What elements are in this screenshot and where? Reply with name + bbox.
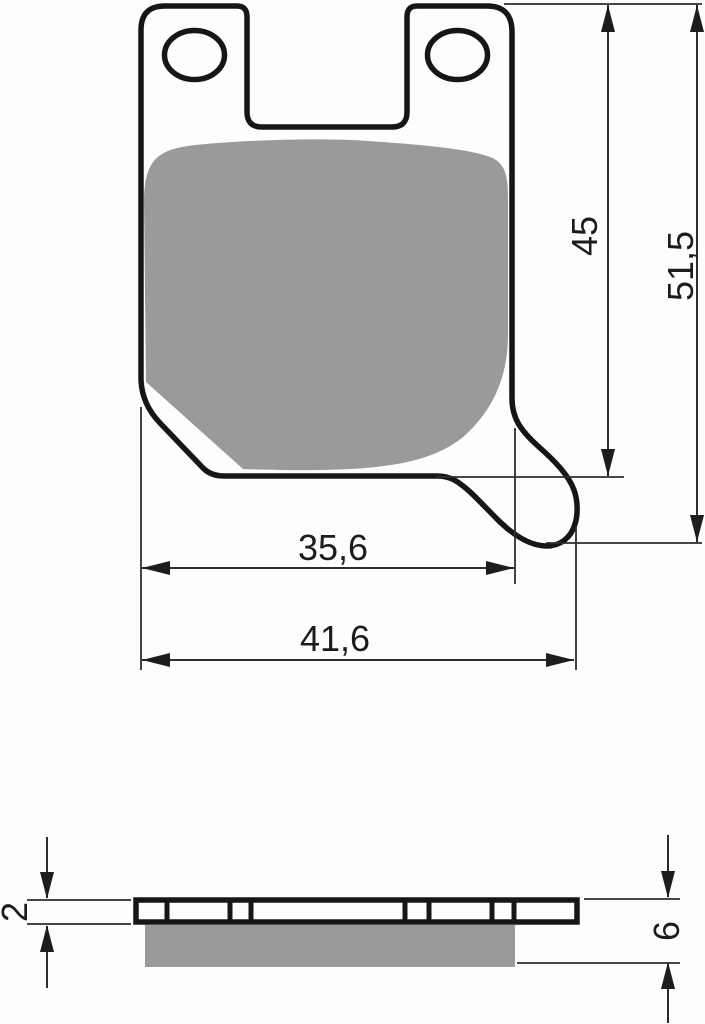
mounting-hole-right [428,31,488,80]
dimension-total-thickness: 6 [517,835,687,1023]
friction-material [144,139,508,470]
arrowhead-up [601,5,615,32]
arrowhead-down [40,872,54,899]
arrowhead-down [661,871,675,898]
arrowhead-up [661,962,675,989]
dimension-total-height: 51,5 [546,5,704,543]
technical-drawing: 45 51,5 35,6 [0,0,705,1024]
mounting-hole-left [165,31,225,80]
top-view: 45 51,5 35,6 [141,4,704,670]
dimension-label-pad-width: 35,6 [298,527,368,568]
dimension-label-total-thickness: 6 [646,921,687,941]
dimension-label-total-height: 51,5 [660,231,701,301]
drawing-canvas: 45 51,5 35,6 [0,0,705,1024]
dimension-label-backplate-thickness: 2 [0,902,35,922]
arrowhead-down [601,449,615,476]
arrowhead-right [546,653,574,667]
arrowhead-right [486,561,514,575]
arrowhead-left [142,653,170,667]
arrowhead-up [40,925,54,952]
dimension-backplate-thickness: 2 [0,837,131,988]
friction-material-profile [145,925,515,967]
dimension-label-pad-height: 45 [564,216,605,256]
dimension-label-total-width: 41,6 [300,618,370,659]
arrowhead-up [690,5,704,32]
backing-plate-profile [136,900,577,922]
arrowhead-left [142,561,170,575]
side-view: 2 6 [0,835,687,1023]
arrowhead-down [690,515,704,542]
